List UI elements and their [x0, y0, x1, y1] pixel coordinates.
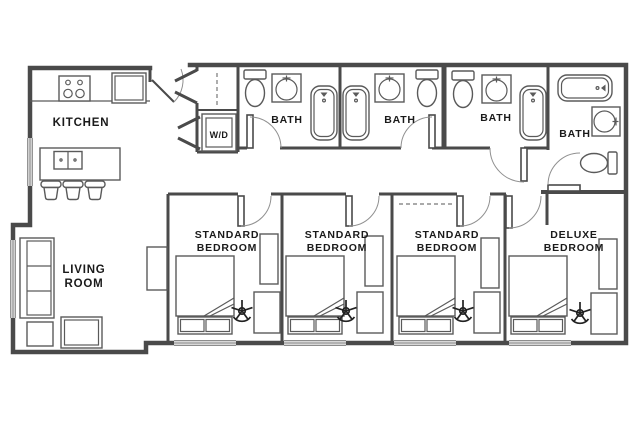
- bedroom-label-line2: BEDROOM: [417, 242, 477, 254]
- entry-door-arc: [174, 69, 183, 102]
- window: [284, 340, 346, 346]
- bedroom-label-line1: DELUXE: [550, 229, 597, 241]
- stove-icon: [59, 76, 90, 101]
- kitchen-room: KITCHEN: [30, 73, 150, 200]
- bedroom-label-line2: BEDROOM: [197, 242, 257, 254]
- entry: [152, 69, 217, 107]
- desk-icon: [591, 293, 617, 334]
- window: [27, 138, 33, 186]
- dresser-icon: [365, 236, 383, 286]
- door-arc: [548, 153, 580, 185]
- window: [10, 240, 16, 318]
- desk-chair-icon: [570, 302, 591, 323]
- bedroom-2: STANDARD BEDROOM: [286, 196, 383, 334]
- living-room: LIVING ROOM: [20, 238, 167, 348]
- floor-plan-svg: KITCHEN W/D BATH BATH: [0, 0, 640, 432]
- living-room-label-line1: LIVING: [62, 264, 105, 276]
- bed-icon: [509, 256, 567, 334]
- bed-icon: [176, 256, 234, 334]
- window: [174, 340, 236, 346]
- door-arc: [460, 196, 490, 226]
- door-leaf: [238, 196, 244, 226]
- bar-stool-icon: [85, 181, 105, 200]
- door-arc: [349, 196, 379, 226]
- bath-sink-icon: [375, 74, 404, 102]
- bedroom-label-line1: STANDARD: [195, 229, 260, 241]
- door-leaf: [548, 185, 580, 191]
- door-leaf: [506, 196, 512, 228]
- dresser-icon: [481, 238, 499, 288]
- desk-icon: [254, 292, 280, 333]
- bath-sink-icon: [482, 75, 511, 103]
- entry-closet-doors: [175, 70, 197, 103]
- bedroom-label-line2: BEDROOM: [544, 242, 604, 254]
- door-leaf: [429, 115, 435, 148]
- bath-sink-icon: [592, 107, 620, 136]
- bath-room-4: BATH: [548, 75, 620, 191]
- desk-icon: [474, 292, 500, 333]
- laundry-label: W/D: [210, 130, 229, 140]
- bath-label: BATH: [384, 114, 416, 126]
- living-room-label-line2: ROOM: [65, 278, 104, 290]
- refrigerator-icon: [112, 73, 146, 103]
- bathtub-icon: [311, 86, 337, 140]
- bath-label: BATH: [271, 114, 303, 126]
- bedroom-4-deluxe: DELUXE BEDROOM: [506, 196, 617, 334]
- door-arc: [490, 148, 524, 182]
- bath-sink-icon: [272, 74, 301, 102]
- door-leaf: [457, 196, 463, 226]
- door-leaf: [247, 115, 253, 148]
- bar-stool-icon: [41, 181, 61, 200]
- bed-icon: [397, 256, 455, 334]
- dresser-icon: [260, 234, 278, 284]
- toilet-icon: [581, 152, 618, 174]
- kitchen-label: KITCHEN: [53, 117, 110, 129]
- window: [509, 340, 571, 346]
- toilet-icon: [416, 70, 438, 107]
- bath-room-2: BATH: [343, 70, 438, 148]
- bathtub-icon: [343, 86, 369, 140]
- bath-room-3: BATH: [452, 71, 546, 182]
- laundry-closet: W/D: [178, 114, 236, 151]
- bath-room-1: BATH: [244, 70, 337, 148]
- bedroom-3: STANDARD BEDROOM: [397, 196, 500, 334]
- bathtub-icon: [520, 86, 546, 140]
- toilet-icon: [244, 70, 266, 107]
- bedroom-label-line1: STANDARD: [305, 229, 370, 241]
- door-arc: [241, 196, 271, 226]
- tv-console-icon: [147, 247, 167, 290]
- window: [394, 340, 456, 346]
- bedroom-label-line2: BEDROOM: [307, 242, 367, 254]
- bath-label: BATH: [480, 112, 512, 124]
- bathtub-icon: [558, 75, 612, 101]
- floor-plan: KITCHEN W/D BATH BATH: [0, 0, 640, 432]
- side-table-icon: [27, 322, 53, 346]
- bed-icon: [286, 256, 344, 334]
- toilet-icon: [452, 71, 474, 108]
- bedroom-1: STANDARD BEDROOM: [176, 196, 280, 334]
- bar-stool-icon: [63, 181, 83, 200]
- entry-door-leaf: [152, 80, 174, 102]
- bedroom-label-line1: STANDARD: [415, 229, 480, 241]
- door-leaf: [346, 196, 352, 226]
- kitchen-island: [40, 148, 120, 180]
- kitchen-sink-icon: [54, 152, 82, 170]
- door-leaf: [521, 148, 527, 181]
- sofa-icon: [20, 238, 54, 318]
- bath-label: BATH: [559, 128, 591, 140]
- desk-icon: [357, 292, 383, 333]
- door-arc: [509, 196, 541, 228]
- accent-chair-icon: [61, 317, 102, 348]
